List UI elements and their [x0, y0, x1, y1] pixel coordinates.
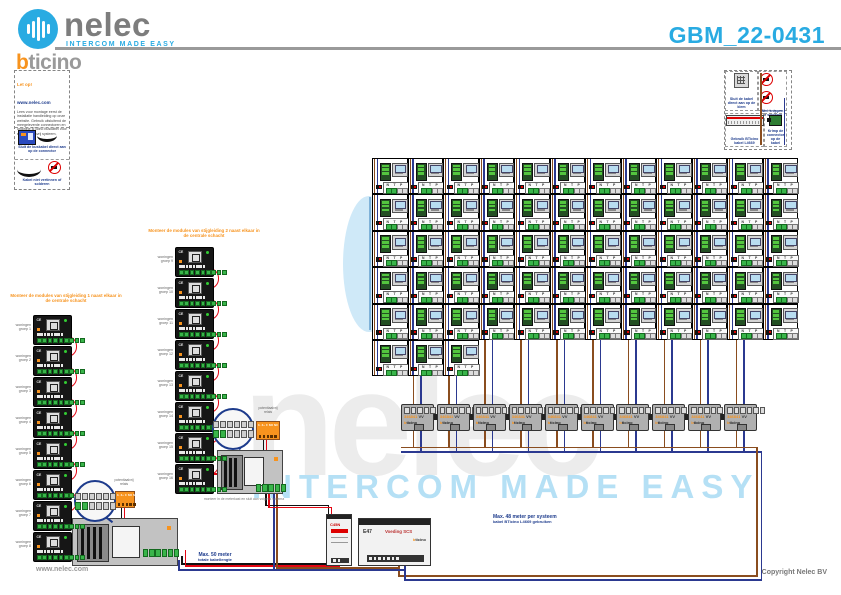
flat-pcb-icon — [664, 235, 675, 253]
flat-distributor-icon: NTP — [631, 218, 657, 230]
wire-red — [124, 508, 125, 518]
intercom-monitor-icon — [676, 199, 692, 214]
wire-blue — [528, 340, 530, 404]
cable-icon — [17, 162, 41, 177]
flat-pcb-icon — [664, 163, 675, 181]
wire-blue — [707, 340, 709, 404]
flat-pcb-icon — [664, 308, 675, 326]
riser-module-label: woningengroep 15 — [143, 441, 173, 449]
bus-plug-icon — [660, 330, 666, 335]
flat-pcb-icon — [664, 272, 675, 290]
riser-bus-module: CE — [175, 402, 214, 432]
flat-pcb-icon — [380, 199, 391, 217]
flat-pcb-icon — [735, 163, 746, 181]
flat-pcb-icon — [771, 235, 782, 253]
floor-distributor: 346841 VV bticino — [724, 404, 757, 431]
intercom-monitor-icon — [712, 272, 728, 287]
flat-pcb-icon — [487, 272, 498, 290]
floor-distributor: 346841 VV bticino — [401, 404, 434, 431]
apartment-unit: NTP — [763, 304, 799, 340]
legend-caption: Sluit de kabel direct aan op de klem — [727, 97, 756, 109]
bus-plug-icon — [766, 330, 772, 335]
apartment-unit: NTP — [763, 267, 799, 303]
apartment-unit: NTP — [692, 158, 728, 194]
flat-pcb-icon — [558, 235, 569, 253]
flat-pcb-icon — [451, 272, 462, 290]
floor-distributor: 346841 VV bticino — [473, 404, 506, 431]
bus-plug-icon — [553, 185, 559, 190]
flat-pcb-icon — [487, 199, 498, 217]
riser-module-label: woningengroep 6 — [1, 478, 31, 486]
riser-module-label: woningengroep 11 — [143, 317, 173, 325]
brand-name: nelec — [64, 6, 151, 44]
floor-distributor: 346841 VV bticino — [509, 404, 542, 431]
apartment-unit: NTP — [763, 158, 799, 194]
note-caption-2: Kabel niet vertinnen of solderen — [16, 178, 68, 186]
flat-pcb-icon — [593, 235, 604, 253]
intercom-monitor-icon — [641, 272, 657, 287]
flat-pcb-icon — [558, 308, 569, 326]
flat-distributor-icon: NTP — [773, 255, 799, 267]
cabinet2-note: monteer in de meterkast en sluit aan vol… — [196, 497, 292, 501]
flat-distributor-icon: NTP — [383, 255, 409, 267]
riser-module-label: woningengroep 7 — [1, 509, 31, 517]
nelec-logo-icon — [18, 9, 58, 49]
intercom-monitor-icon — [641, 199, 657, 214]
wire-blue — [178, 569, 405, 571]
wire-brown — [756, 447, 758, 577]
bus-plug-icon — [482, 221, 488, 226]
intercom-monitor-icon — [428, 308, 444, 323]
flat-pcb-icon — [416, 272, 427, 290]
wire-brown — [736, 340, 738, 404]
intercom-monitor-icon — [783, 308, 799, 323]
bus-cable-icon — [726, 115, 764, 126]
bus-plug-icon — [695, 257, 701, 262]
flat-distributor-icon: NTP — [667, 255, 693, 267]
bus-plug-icon — [518, 185, 524, 190]
intercom-monitor-icon — [641, 163, 657, 178]
wire-brown — [592, 340, 594, 404]
apartment-unit: NTP — [443, 194, 479, 230]
wire-brown — [556, 340, 558, 404]
bus-plug-icon — [376, 221, 382, 226]
wire-black — [121, 508, 122, 518]
bus-plug-icon — [376, 294, 382, 299]
flat-distributor-icon: NTP — [418, 182, 444, 194]
flat-pcb-icon — [593, 163, 604, 181]
chain1-title: Monteer de modules van stijgleiding 1 na… — [10, 293, 122, 304]
intercom-monitor-icon — [783, 163, 799, 178]
bus-plug-icon — [589, 257, 595, 262]
bus-plug-icon — [624, 330, 630, 335]
intercom-monitor-icon — [428, 272, 444, 287]
bus-plug-icon — [482, 185, 488, 190]
bus-plug-icon — [553, 257, 559, 262]
floor-distributor: 346841 VV bticino — [581, 404, 614, 431]
bus-plug-icon — [731, 330, 737, 335]
flat-distributor-icon: NTP — [738, 255, 764, 267]
copyright-text: Copyright Nelec BV — [762, 569, 827, 576]
flat-distributor-icon: NTP — [702, 291, 728, 303]
intercom-monitor-icon — [747, 272, 763, 287]
intercom-monitor-icon — [499, 272, 515, 287]
flat-distributor-icon: NTP — [418, 291, 444, 303]
bus-plug-icon — [660, 294, 666, 299]
flat-pcb-icon — [558, 163, 569, 181]
wire-brown — [520, 431, 522, 447]
installation-note-box: Let op! www.nelec.com Lees voor montage … — [14, 70, 70, 190]
watermark-tagline: INTERCOM MADE EASY — [252, 470, 759, 503]
connector-device-icon — [18, 130, 36, 145]
apartment-unit: NTP — [692, 231, 728, 267]
flat-distributor-icon: NTP — [489, 291, 515, 303]
riser-module-label: woningengroep 2 — [1, 354, 31, 362]
riser-bus-module: CE — [33, 439, 72, 469]
riser-bus-module: CE — [175, 309, 214, 339]
bus-plug-icon — [766, 185, 772, 190]
flat-pcb-icon — [735, 199, 746, 217]
riser-module-label: woningengroep 8 — [1, 540, 31, 548]
flat-distributor-icon: NTP — [383, 291, 409, 303]
bus-plug-icon — [518, 221, 524, 226]
flat-pcb-icon — [558, 199, 569, 217]
meter-cabinet-2 — [217, 450, 283, 494]
floor-distributor: 346841 VV bticino — [616, 404, 649, 431]
connector-pcb-icon — [769, 115, 782, 126]
apartment-unit: NTP — [408, 304, 444, 340]
apartment-unit: NTP — [408, 267, 444, 303]
flat-distributor-icon: NTP — [560, 255, 586, 267]
keypad-icon — [734, 73, 749, 88]
relay-module-2: 3- 3+ C NO NC — [256, 421, 280, 440]
intercom-monitor-icon — [570, 272, 586, 287]
apartment-unit: NTP — [550, 194, 586, 230]
legend-cell: Gebruik BTicino kabel L4669 — [725, 113, 764, 147]
bus-plug-icon — [411, 257, 417, 262]
intercom-monitor-icon — [676, 308, 692, 323]
flat-distributor-icon: NTP — [383, 218, 409, 230]
wire-blue — [404, 579, 762, 581]
flat-distributor-icon: NTP — [631, 328, 657, 340]
apartment-unit: NTP — [727, 267, 763, 303]
apartment-unit: NTP — [479, 304, 515, 340]
flat-distributor-icon: NTP — [667, 328, 693, 340]
bus-plug-icon — [411, 367, 417, 372]
apartment-unit: NTP — [408, 158, 444, 194]
apartment-unit: NTP — [372, 231, 408, 267]
riser-module-label: woningengroep 14 — [143, 410, 173, 418]
wire-blue — [671, 431, 673, 452]
flat-pcb-icon — [380, 345, 391, 363]
apartment-unit: NTP — [372, 267, 408, 303]
wire-blue — [404, 566, 406, 581]
note-heading: Let op! — [17, 82, 32, 87]
intercom-monitor-icon — [747, 163, 763, 178]
bus-plug-icon — [589, 294, 595, 299]
intercom-monitor-icon — [712, 199, 728, 214]
apartment-unit: NTP — [443, 304, 479, 340]
apartment-unit: NTP — [656, 267, 692, 303]
wire-blue — [420, 376, 422, 404]
bus-plug-icon — [624, 294, 630, 299]
flat-distributor-icon: NTP — [702, 328, 728, 340]
apartment-unit: NTP — [763, 194, 799, 230]
intercom-monitor-icon — [747, 308, 763, 323]
intercom-monitor-icon — [392, 235, 408, 250]
flat-distributor-icon: NTP — [489, 328, 515, 340]
bus-plug-icon — [447, 330, 453, 335]
flat-pcb-icon — [380, 308, 391, 326]
flat-distributor-icon: NTP — [383, 182, 409, 194]
bus-plug-icon — [624, 185, 630, 190]
bus-plug-icon — [376, 257, 382, 262]
flat-pcb-icon — [522, 272, 533, 290]
intercom-monitor-icon — [641, 308, 657, 323]
flat-pcb-icon — [629, 199, 640, 217]
flat-distributor-icon: NTP — [525, 218, 551, 230]
intercom-monitor-icon — [428, 235, 444, 250]
circuit-breaker: C45N — [326, 514, 352, 566]
intercom-monitor-icon — [570, 235, 586, 250]
no-solder-icon — [760, 91, 773, 104]
flat-distributor-icon: NTP — [525, 255, 551, 267]
flat-pcb-icon — [629, 272, 640, 290]
bus-plug-icon — [482, 257, 488, 262]
riser-bus-module: CE — [33, 470, 72, 500]
intercom-monitor-icon — [605, 272, 621, 287]
intercom-monitor-icon — [783, 199, 799, 214]
apartment-unit: NTP — [372, 158, 408, 194]
apartment-unit: NTP — [408, 231, 444, 267]
flat-pcb-icon — [416, 308, 427, 326]
wire-brown — [413, 376, 415, 404]
intercom-monitor-icon — [534, 199, 550, 214]
flat-distributor-icon: NTP — [383, 364, 409, 376]
wire-brown — [413, 431, 415, 447]
riser-bus-module: CE — [33, 346, 72, 376]
bus-plug-icon — [695, 221, 701, 226]
riser-bus-module: CE — [175, 278, 214, 308]
bus-plug-icon — [447, 294, 453, 299]
flat-distributor-icon: NTP — [418, 364, 444, 376]
apartment-unit: NTP — [443, 231, 479, 267]
intercom-monitor-icon — [463, 308, 479, 323]
wire-brown — [556, 431, 558, 447]
apartment-unit: NTP — [763, 231, 799, 267]
apartment-unit: NTP — [621, 158, 657, 194]
flat-pcb-icon — [629, 163, 640, 181]
flat-pcb-icon — [700, 308, 711, 326]
document-title: GBM_22-0431 — [669, 22, 825, 49]
flat-distributor-icon: NTP — [489, 218, 515, 230]
flat-pcb-icon — [380, 235, 391, 253]
bus-plug-icon — [589, 221, 595, 226]
flat-pcb-icon — [451, 345, 462, 363]
apartment-unit: NTP — [656, 231, 692, 267]
wire-brown — [736, 431, 738, 447]
floor-distributor: 346841 VV bticino — [545, 404, 578, 431]
flat-distributor-icon: NTP — [773, 218, 799, 230]
flat-distributor-icon: NTP — [702, 218, 728, 230]
flat-pcb-icon — [735, 272, 746, 290]
flat-pcb-icon — [593, 272, 604, 290]
note-caption-1: Sluit de buskabel direct aan op de conne… — [16, 145, 68, 153]
apartment-unit: NTP — [514, 267, 550, 303]
intercom-monitor-icon — [428, 163, 444, 178]
cable-icon — [37, 129, 57, 142]
intercom-monitor-icon — [428, 199, 444, 214]
relay-module-1: 3- 3+ C NO NC — [115, 491, 135, 508]
flat-pcb-icon — [771, 199, 782, 217]
intercom-monitor-icon — [392, 163, 408, 178]
flat-distributor-icon: NTP — [667, 291, 693, 303]
intercom-monitor-icon — [712, 308, 728, 323]
bus-plug-icon — [447, 185, 453, 190]
flat-distributor-icon: NTP — [773, 182, 799, 194]
flat-pcb-icon — [735, 308, 746, 326]
wire-blue — [743, 340, 745, 404]
flat-distributor-icon: NTP — [454, 291, 480, 303]
intercom-monitor-icon — [570, 308, 586, 323]
wire-brown — [484, 340, 486, 404]
apartment-unit: NTP — [550, 267, 586, 303]
riser-bus-module: CE — [33, 315, 72, 345]
bus-plug-icon — [411, 294, 417, 299]
riser-bus-module: CE — [175, 247, 214, 277]
flat-pcb-icon — [380, 272, 391, 290]
flat-distributor-icon: NTP — [525, 291, 551, 303]
apartment-unit: NTP — [656, 304, 692, 340]
apartment-unit: NTP — [479, 158, 515, 194]
bus-plug-icon — [731, 294, 737, 299]
intercom-monitor-icon — [392, 272, 408, 287]
wire-blue — [635, 431, 637, 452]
wire-brown — [664, 340, 666, 404]
bus-plug-icon — [660, 221, 666, 226]
flat-distributor-icon: NTP — [525, 328, 551, 340]
bus-plug-icon — [624, 221, 630, 226]
wire-brown — [448, 431, 450, 447]
apartment-unit: NTP — [550, 158, 586, 194]
apartment-unit: NTP — [479, 267, 515, 303]
intercom-monitor-icon — [605, 163, 621, 178]
flat-distributor-icon: NTP — [596, 218, 622, 230]
apartment-unit: NTP — [372, 194, 408, 230]
legend-cell: Sluit de kabel direct aan op de klem — [725, 71, 758, 111]
flat-pcb-icon — [700, 163, 711, 181]
flat-distributor-icon: NTP — [454, 218, 480, 230]
apartment-unit: NTP — [443, 267, 479, 303]
flat-distributor-icon: NTP — [596, 291, 622, 303]
intercom-monitor-icon — [534, 308, 550, 323]
intercom-monitor-icon — [747, 199, 763, 214]
apartment-unit: NTP — [550, 304, 586, 340]
apartment-unit: NTP — [692, 267, 728, 303]
flat-distributor-icon: NTP — [454, 364, 480, 376]
flat-pcb-icon — [522, 163, 533, 181]
wire-brown — [760, 73, 762, 145]
scs-power-supply: E47 Voeding SCS bticino — [358, 518, 431, 566]
intercom-monitor-icon — [499, 199, 515, 214]
wire-blue — [743, 431, 745, 452]
bus-plug-icon — [376, 367, 382, 372]
annotation-system-length: Max. 48 meter per systeemkabel BTicino L… — [493, 514, 613, 525]
apartment-unit: NTP — [656, 194, 692, 230]
flat-distributor-icon: NTP — [454, 328, 480, 340]
relay2-label: potentiaalvrijrelais — [246, 407, 290, 415]
bus-plug-icon — [553, 294, 559, 299]
flat-distributor-icon: NTP — [596, 182, 622, 194]
wire-blue — [707, 431, 709, 452]
wire-brown — [628, 340, 630, 404]
intercom-monitor-icon — [783, 272, 799, 287]
wire-blue — [635, 340, 637, 404]
flat-distributor-icon: NTP — [525, 182, 551, 194]
bus-plug-icon — [589, 330, 595, 335]
bus-plug-icon — [766, 294, 772, 299]
riser-module-label: woningengroep 10 — [143, 286, 173, 294]
wire-brown — [628, 431, 630, 447]
flat-pcb-icon — [451, 163, 462, 181]
intercom-monitor-icon — [570, 199, 586, 214]
riser-module-label: woningengroep 13 — [143, 379, 173, 387]
riser-bus-module: CE — [175, 340, 214, 370]
legend-caption: Gebruik BTicino kabel L4669 — [727, 137, 762, 145]
intercom-monitor-icon — [499, 235, 515, 250]
apartment-unit: NTP — [585, 231, 621, 267]
wire-brown — [276, 492, 278, 568]
flat-distributor-icon: NTP — [631, 255, 657, 267]
wiring-legend-box: Sluit de kabel direct aan op de klem Nie… — [724, 70, 792, 150]
flat-distributor-icon: NTP — [418, 328, 444, 340]
bus-plug-icon — [411, 330, 417, 335]
apartment-unit: NTP — [372, 340, 408, 376]
flat-pcb-icon — [522, 308, 533, 326]
riser-module-label: woningengroep 9 — [143, 255, 173, 263]
flat-pcb-icon — [451, 199, 462, 217]
bus-plug-icon — [482, 330, 488, 335]
flat-pcb-icon — [771, 272, 782, 290]
apartment-unit: NTP — [621, 304, 657, 340]
bus-plug-icon — [518, 330, 524, 335]
intercom-monitor-icon — [676, 163, 692, 178]
annotation-max-length: Max. 50 metertotale kabellengte — [168, 552, 262, 563]
meter-cabinet-1 — [72, 518, 178, 566]
wire-blue — [492, 340, 494, 404]
intercom-monitor-icon — [783, 235, 799, 250]
bus-plug-icon — [731, 185, 737, 190]
intercom-monitor-icon — [392, 345, 408, 360]
wire-blue — [401, 451, 762, 453]
flat-pcb-icon — [735, 235, 746, 253]
flat-distributor-icon: NTP — [489, 182, 515, 194]
flat-pcb-icon — [487, 308, 498, 326]
note-illustration-prohibit: Kabel niet vertinnen of solderen — [15, 160, 69, 193]
intercom-monitor-icon — [676, 272, 692, 287]
flat-pcb-icon — [487, 235, 498, 253]
terminal-detail-callout-1 — [74, 480, 116, 522]
apartment-unit: NTP — [372, 304, 408, 340]
flat-pcb-icon — [522, 199, 533, 217]
flat-distributor-icon: NTP — [773, 291, 799, 303]
wire-blue — [420, 431, 422, 452]
flat-distributor-icon: NTP — [631, 182, 657, 194]
apartment-unit: NTP — [692, 304, 728, 340]
flat-pcb-icon — [771, 163, 782, 181]
flat-pcb-icon — [416, 163, 427, 181]
wire-red — [266, 440, 267, 450]
